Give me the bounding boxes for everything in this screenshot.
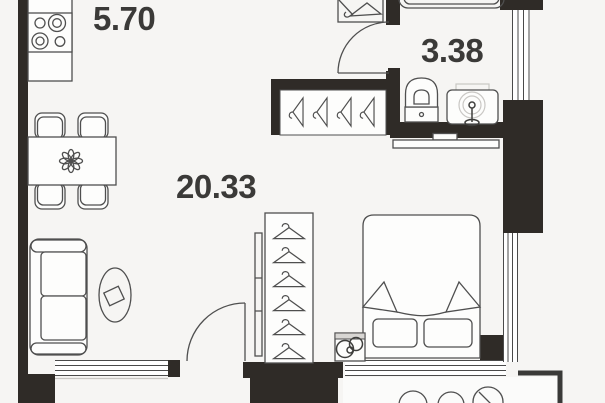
bathroom-area-label: 3.38 [421, 34, 483, 67]
washing-machine-icon [335, 333, 365, 361]
pillow-icon [424, 319, 472, 347]
window-bottom-left [55, 360, 168, 376]
wardrobe-side-panel [255, 233, 262, 356]
entry-closet [338, 0, 383, 22]
sink-icon [447, 84, 498, 126]
window-bottom-right [345, 360, 506, 376]
hanger-icon [344, 3, 381, 17]
window-right-bathroom [512, 5, 530, 102]
pillow-icon [373, 319, 417, 347]
dining-group [28, 113, 116, 209]
living-area-label: 20.33 [176, 170, 256, 203]
hallway-wardrobe [280, 90, 386, 135]
rug-icon [99, 268, 131, 322]
entry-door-swing-icon [187, 303, 245, 361]
main-wardrobe [255, 213, 313, 363]
bed-icon [363, 215, 480, 358]
window-right-bedroom [503, 233, 518, 362]
kitchen-area-label: 5.70 [93, 2, 155, 35]
bathtub-icon [399, 0, 504, 8]
floor-plan-drawing [0, 0, 605, 403]
floor-plan-canvas: 5.70 3.38 20.33 [0, 0, 605, 403]
sofa-icon [30, 239, 87, 355]
bathroom-door-swing-icon [338, 22, 389, 73]
toilet-icon [405, 78, 438, 122]
stove-icon [28, 13, 72, 52]
kitchen-counter [28, 0, 72, 81]
